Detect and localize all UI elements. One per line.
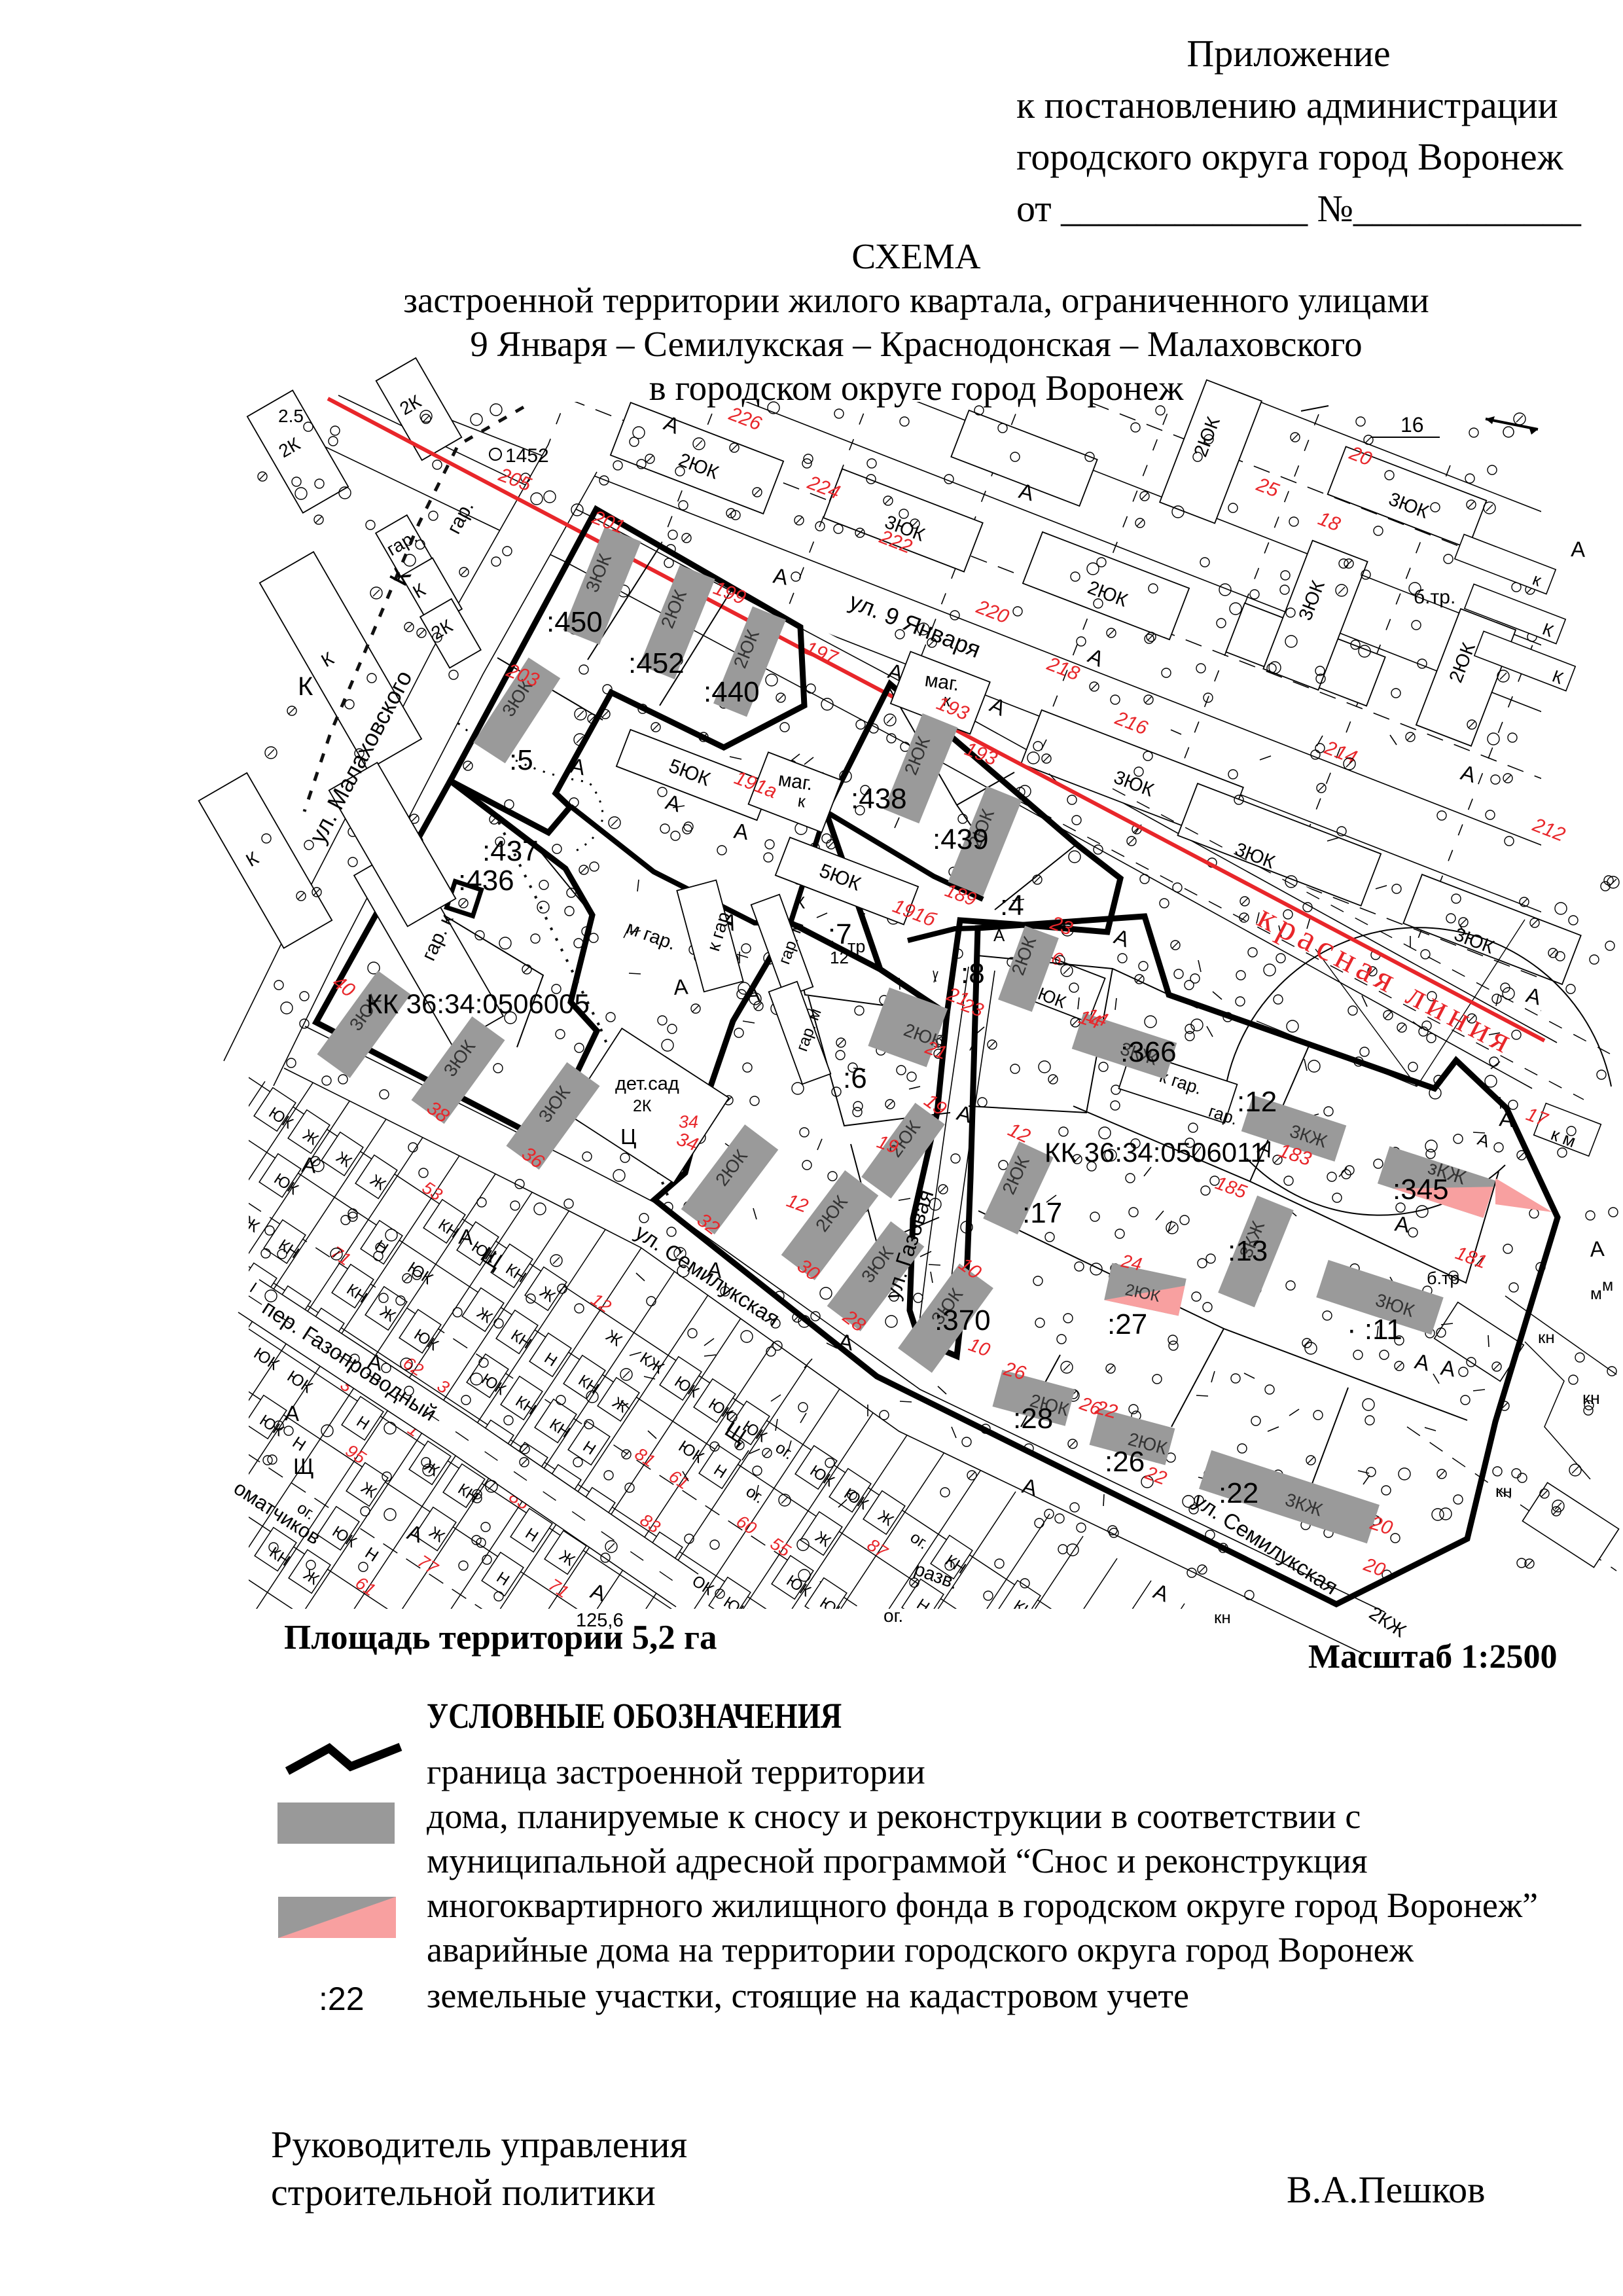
svg-text:Ж: Ж xyxy=(240,1213,263,1236)
svg-text:А: А xyxy=(772,563,790,589)
svg-text:К: К xyxy=(298,672,313,701)
svg-text:А: А xyxy=(1439,1355,1457,1381)
svg-text:А: А xyxy=(1458,760,1478,787)
svg-text:1452: 1452 xyxy=(505,445,549,467)
svg-text:Н: Н xyxy=(289,1433,310,1455)
svg-text:гар.: гар. xyxy=(1206,1101,1240,1128)
svg-text:А: А xyxy=(300,1152,317,1177)
svg-text::440: :440 xyxy=(704,676,760,708)
svg-text::437: :437 xyxy=(482,835,539,867)
svg-text:б.тр.: б.тр. xyxy=(1414,586,1455,608)
svg-text::452: :452 xyxy=(628,647,685,679)
svg-text:А: А xyxy=(1150,1579,1172,1606)
svg-text:18: 18 xyxy=(1315,508,1343,536)
svg-text:ЮК: ЮК xyxy=(675,1437,707,1467)
svg-text:А: А xyxy=(673,975,689,999)
svg-text:25: 25 xyxy=(1253,473,1282,501)
svg-text::4: :4 xyxy=(1000,889,1024,922)
svg-text:А: А xyxy=(1084,643,1107,672)
svg-text:КК 36:34:0506011: КК 36:34:0506011 xyxy=(1044,1137,1266,1168)
svg-text:А: А xyxy=(404,1520,426,1547)
svg-text:кн: кн xyxy=(1582,1388,1600,1408)
svg-text:кн: кн xyxy=(1495,1481,1512,1501)
svg-text:22: 22 xyxy=(1142,1462,1169,1489)
svg-text:м гар.: м гар. xyxy=(624,918,679,955)
svg-text:214: 214 xyxy=(1321,736,1360,768)
svg-text::22: :22 xyxy=(1219,1477,1258,1509)
svg-text::436: :436 xyxy=(458,865,514,897)
svg-text::13: :13 xyxy=(1228,1235,1268,1267)
svg-text::345: :345 xyxy=(1393,1174,1449,1206)
svg-text:А: А xyxy=(1524,982,1544,1009)
svg-text:А: А xyxy=(663,789,683,817)
svg-text:Щ: Щ xyxy=(293,1454,314,1479)
svg-text:А: А xyxy=(1571,537,1586,562)
svg-text:ул. 9 Января: ул. 9 Января xyxy=(846,587,984,663)
svg-text:191б: 191б xyxy=(889,895,938,931)
svg-text::17: :17 xyxy=(1022,1197,1062,1229)
svg-text:кн: кн xyxy=(1538,1327,1555,1347)
svg-text:КК 36:34:0506005: КК 36:34:0506005 xyxy=(366,988,590,1019)
svg-text::370: :370 xyxy=(935,1304,991,1336)
svg-text:м: м xyxy=(1590,1283,1602,1303)
svg-text:кн: кн xyxy=(1214,1607,1231,1627)
svg-text:212: 212 xyxy=(1529,814,1569,846)
svg-text:А: А xyxy=(1589,1236,1605,1261)
svg-text::12: :12 xyxy=(1237,1086,1277,1118)
svg-text:А: А xyxy=(993,925,1005,945)
svg-text:А: А xyxy=(457,1224,474,1249)
svg-text::366: :366 xyxy=(1120,1036,1177,1068)
svg-text:А: А xyxy=(588,1579,609,1606)
svg-text:226: 226 xyxy=(726,403,765,435)
svg-text:Ц: Ц xyxy=(620,1124,636,1149)
svg-text:ЮК: ЮК xyxy=(404,1259,437,1289)
svg-text:дет.сад: дет.сад xyxy=(615,1073,679,1094)
svg-text:А: А xyxy=(732,818,750,844)
svg-text:16: 16 xyxy=(1400,413,1424,437)
svg-text::27: :27 xyxy=(1107,1308,1147,1340)
svg-text:Ж: Ж xyxy=(603,1327,626,1350)
svg-text:· :7: · :7 xyxy=(810,918,852,950)
svg-text:А: А xyxy=(1111,924,1133,952)
svg-text::28: :28 xyxy=(1013,1403,1053,1435)
svg-text::26: :26 xyxy=(1105,1446,1145,1478)
svg-text::8: :8 xyxy=(961,958,985,990)
svg-text:2К: 2К xyxy=(633,1097,652,1115)
svg-text:216: 216 xyxy=(1112,707,1151,739)
svg-text:ог.: ог. xyxy=(883,1605,903,1626)
svg-text:12: 12 xyxy=(1005,1119,1033,1147)
svg-text:24: 24 xyxy=(1119,1250,1144,1274)
svg-text:185: 185 xyxy=(1213,1173,1250,1204)
svg-text:А: А xyxy=(1413,1349,1432,1376)
svg-text:А: А xyxy=(285,1401,300,1426)
svg-text:220: 220 xyxy=(973,596,1012,628)
svg-text:б.тр: б.тр xyxy=(1427,1268,1459,1288)
svg-text:20: 20 xyxy=(1361,1554,1388,1581)
svg-text:10: 10 xyxy=(966,1335,993,1361)
svg-text:12: 12 xyxy=(784,1191,811,1217)
svg-text:м: м xyxy=(1602,1276,1613,1295)
svg-text:218: 218 xyxy=(1044,653,1083,685)
svg-text::6: :6 xyxy=(843,1062,867,1094)
svg-text:· :11: · :11 xyxy=(1347,1314,1402,1346)
svg-text:К: К xyxy=(795,893,805,912)
svg-text::439: :439 xyxy=(933,823,989,855)
svg-text::5: :5 xyxy=(509,744,533,776)
svg-text:КЖ: КЖ xyxy=(637,1349,668,1378)
svg-text:2.5: 2.5 xyxy=(278,406,304,426)
svg-text::450: :450 xyxy=(546,606,603,638)
svg-text:3: 3 xyxy=(434,1376,453,1397)
svg-text:ЮК: ЮК xyxy=(284,1367,316,1397)
svg-text:12: 12 xyxy=(830,948,849,967)
svg-text::438: :438 xyxy=(851,783,907,815)
